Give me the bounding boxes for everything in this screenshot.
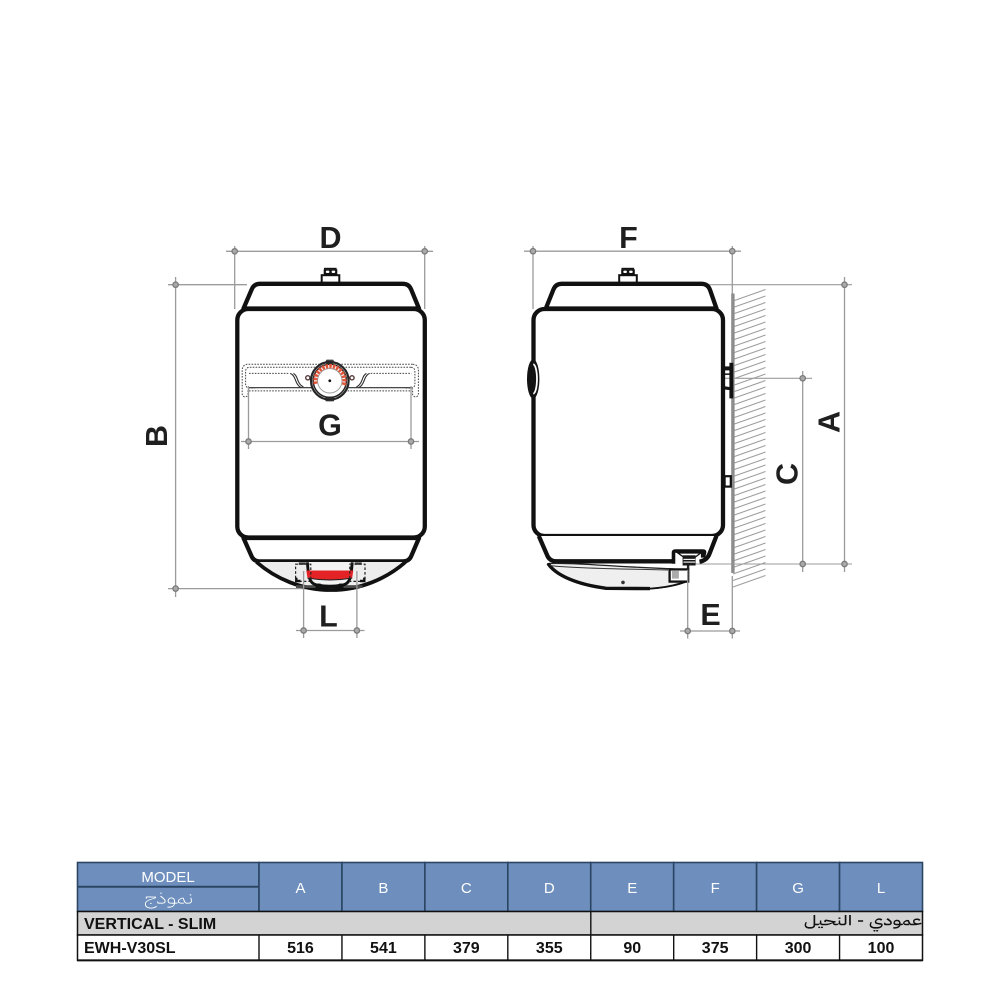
svg-text:A: A [813,411,847,433]
svg-text:355: 355 [536,940,563,957]
svg-text:E: E [627,880,637,897]
svg-text:L: L [319,600,338,634]
svg-text:F: F [619,221,638,255]
svg-text:379: 379 [453,940,480,957]
svg-text:G: G [792,880,804,897]
svg-text:D: D [544,880,555,897]
svg-text:L: L [877,880,885,897]
svg-text:B: B [140,425,174,447]
svg-text:VERTICAL - SLIM: VERTICAL - SLIM [84,916,216,933]
svg-text:G: G [318,409,342,443]
svg-text:EWH-V30SL: EWH-V30SL [84,940,176,957]
svg-text:90: 90 [623,940,641,957]
svg-text:E: E [700,598,720,632]
svg-text:D: D [319,221,341,255]
svg-text:MODEL: MODEL [141,869,194,886]
svg-text:100: 100 [868,940,895,957]
svg-text:B: B [378,880,388,897]
svg-text:541: 541 [370,940,397,957]
svg-text:C: C [771,463,805,485]
svg-text:516: 516 [287,940,314,957]
svg-text:375: 375 [702,940,729,957]
svg-text:A: A [295,880,305,897]
svg-text:300: 300 [785,940,812,957]
svg-text:C: C [461,880,472,897]
svg-text:F: F [711,880,720,897]
